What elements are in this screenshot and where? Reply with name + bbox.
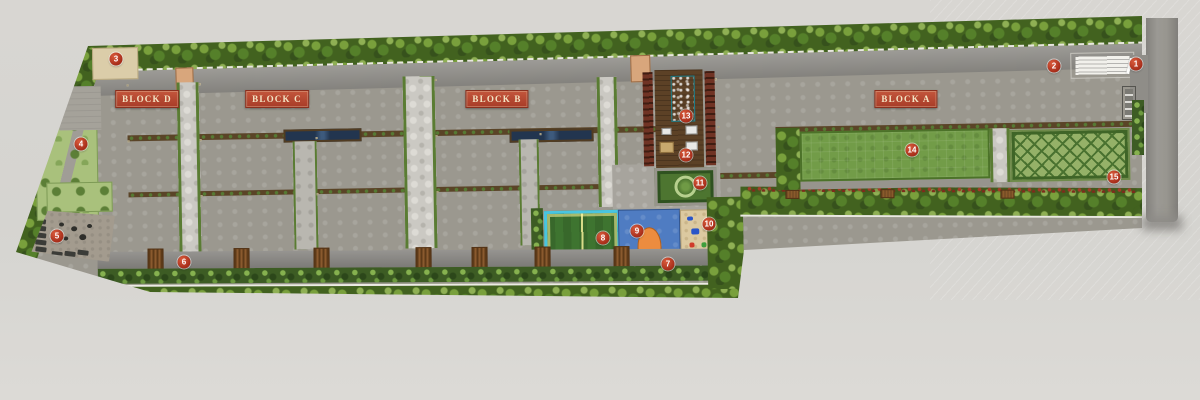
block-label-b: BLOCK B [465, 90, 528, 108]
map-marker-13[interactable]: 13 [680, 110, 693, 123]
block-label-d: BLOCK D [115, 90, 179, 108]
block-label-a: BLOCK A [874, 90, 937, 108]
block-label-c: BLOCK C [245, 90, 309, 108]
map-marker-2[interactable]: 2 [1048, 60, 1061, 73]
map-marker-4[interactable]: 4 [75, 138, 88, 151]
map-marker-10[interactable]: 10 [703, 218, 716, 231]
map-marker-12[interactable]: 12 [680, 149, 693, 162]
masterplan-scene: 123456789101112131415BLOCK DBLOCK CBLOCK… [0, 0, 1200, 400]
labels-and-markers-layer: 123456789101112131415BLOCK DBLOCK CBLOCK… [0, 0, 1200, 400]
map-marker-6[interactable]: 6 [178, 256, 191, 269]
map-marker-15[interactable]: 15 [1108, 171, 1121, 184]
map-marker-5[interactable]: 5 [51, 230, 64, 243]
map-marker-7[interactable]: 7 [662, 258, 675, 271]
map-marker-8[interactable]: 8 [597, 232, 610, 245]
map-marker-3[interactable]: 3 [110, 53, 123, 66]
map-marker-14[interactable]: 14 [906, 144, 919, 157]
map-marker-9[interactable]: 9 [631, 225, 644, 238]
map-marker-1[interactable]: 1 [1130, 58, 1143, 71]
map-marker-11[interactable]: 11 [694, 177, 707, 190]
